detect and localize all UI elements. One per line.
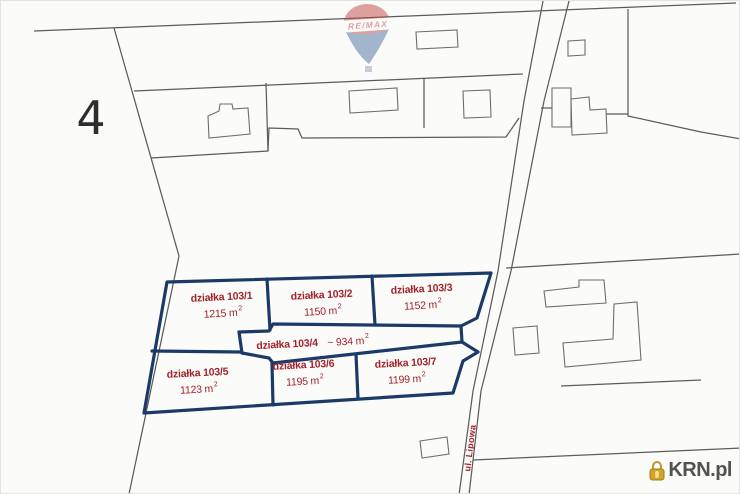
plot-label-103-2: działka 103/2 1150 m2 bbox=[290, 288, 353, 321]
padlock-icon bbox=[648, 460, 666, 481]
building-outline bbox=[463, 90, 491, 118]
road-line-right bbox=[469, 1, 569, 494]
building-outline bbox=[544, 280, 606, 307]
parcel-line-right bbox=[561, 380, 701, 386]
building-outline bbox=[208, 104, 250, 138]
plot-label-103-7: działka 103/7 1199 m2 bbox=[374, 356, 437, 389]
building-outline bbox=[416, 30, 458, 49]
building-outline bbox=[420, 437, 449, 458]
parcel-line bbox=[134, 74, 523, 91]
parcel-line-right bbox=[506, 254, 740, 268]
plot-divider-103-2-103-3 bbox=[372, 276, 375, 325]
plot-divider-103-1-103-5 bbox=[152, 351, 241, 352]
plot-divider-103-1-103-2 bbox=[267, 279, 270, 330]
balloon-basket bbox=[365, 66, 372, 72]
building-outline bbox=[513, 326, 539, 355]
plot-area: 1123 m2 bbox=[167, 379, 229, 399]
district-number: 4 bbox=[76, 91, 105, 145]
plot-103-4-left-edge bbox=[239, 332, 242, 353]
remax-balloon-watermark: RE/MAX bbox=[338, 1, 398, 79]
boundary-line-left-upper bbox=[114, 28, 179, 256]
krn-text: KRN.pl bbox=[668, 459, 732, 482]
plot-area: 1215 m2 bbox=[191, 303, 253, 323]
plot-label-103-3: działka 103/3 1152 m2 bbox=[390, 282, 453, 315]
plot-label-103-5: działka 103/5 1123 m2 bbox=[166, 366, 229, 399]
plot-divider-103-6-103-7 bbox=[356, 354, 358, 399]
krn-watermark: KRN.pl bbox=[648, 459, 732, 482]
parcel-line-right bbox=[628, 9, 740, 139]
plot-label-103-6: działka 103/6 1195 m2 bbox=[272, 358, 335, 391]
plot-area: 1195 m2 bbox=[273, 371, 335, 391]
plot-name: działka 103/4 bbox=[256, 337, 318, 352]
building-outline bbox=[571, 97, 607, 135]
building-outline bbox=[552, 88, 571, 127]
building-outline bbox=[568, 40, 585, 56]
parcel-map: RE/MAX działka 103/1 1215 m2 działka 103… bbox=[0, 0, 740, 494]
balloon-bottom bbox=[346, 29, 389, 64]
plot-area: 1199 m2 bbox=[375, 369, 437, 389]
plot-area: 1150 m2 bbox=[291, 301, 353, 321]
building-outline bbox=[563, 302, 641, 367]
parcel-line bbox=[151, 118, 519, 158]
parcel-divider bbox=[266, 83, 268, 151]
plot-area: ~ 934 m2 bbox=[327, 334, 368, 348]
plot-area: 1152 m2 bbox=[391, 295, 453, 315]
plot-label-103-1: działka 103/1 1215 m2 bbox=[190, 290, 253, 323]
building-outline bbox=[349, 88, 398, 113]
